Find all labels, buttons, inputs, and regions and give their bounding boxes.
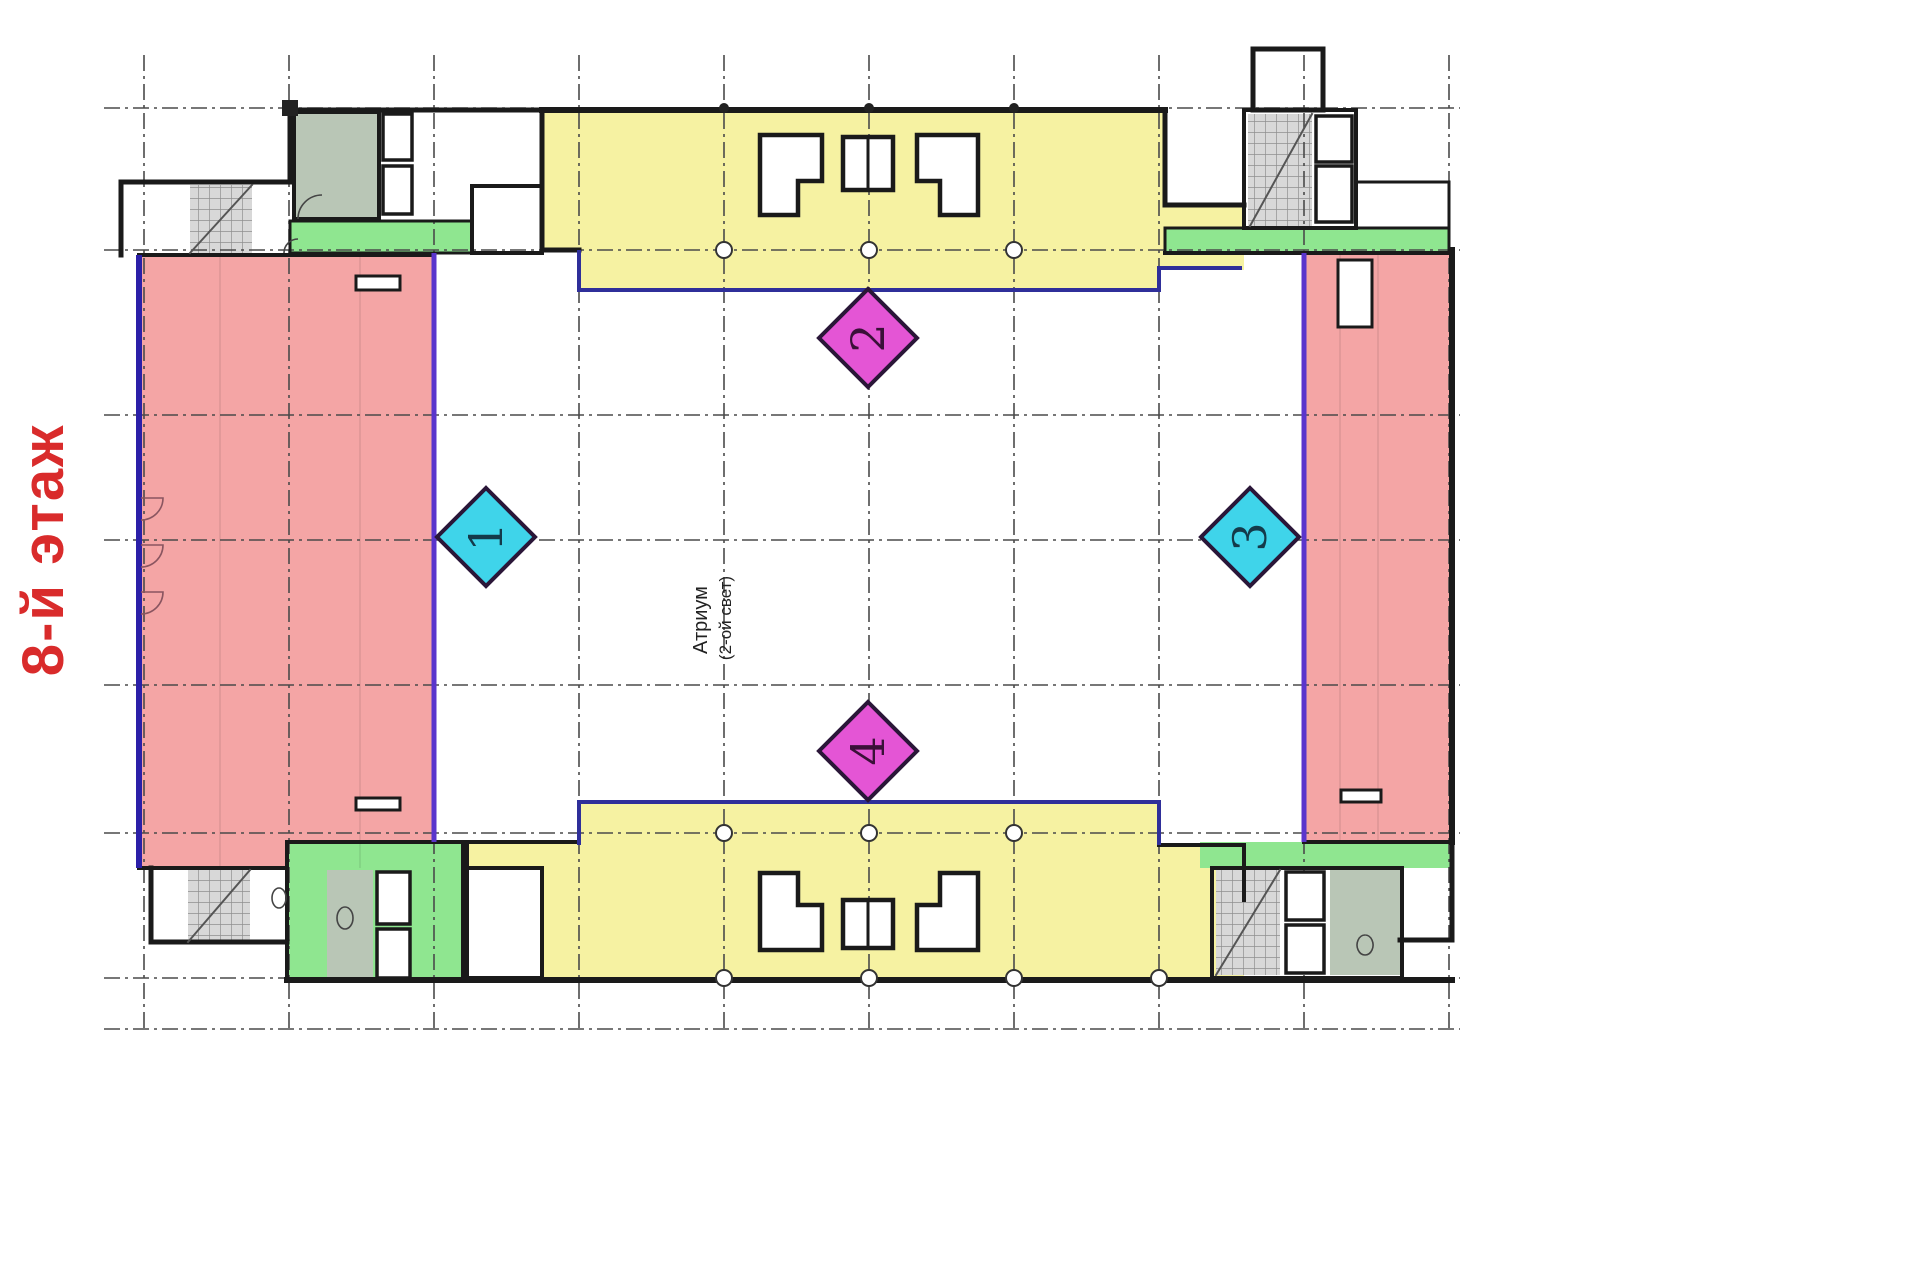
bottom-commercial-zone — [467, 800, 1244, 978]
floor-plan-page: 1 2 3 4 8-й этаж Атриум (2-ой свет) — [0, 0, 1920, 1279]
elevator-shaft — [1286, 872, 1324, 920]
zone-marker-2: 2 — [819, 289, 917, 387]
zone-marker-1: 1 — [437, 488, 535, 586]
zone-marker-3-label: 3 — [1223, 522, 1277, 551]
zone-marker-3: 3 — [1201, 488, 1299, 586]
left-apartment-zone — [139, 255, 434, 868]
corridor-top-left — [290, 221, 472, 253]
corridor-bottom-left — [287, 842, 463, 980]
elevator-shaft — [1286, 925, 1324, 973]
survey-point — [282, 100, 298, 116]
floor-plan-drawing: 1 2 3 4 8-й этаж Атриум (2-ой свет) — [0, 0, 1920, 1279]
lobby-gap-top — [472, 186, 542, 253]
elevator-shaft — [383, 166, 412, 214]
zone-marker-2-label: 2 — [841, 323, 895, 352]
wall-opening — [1341, 790, 1381, 802]
atrium-label-line1: Атриум — [690, 586, 712, 654]
atrium-label: Атриум (2-ой свет) — [690, 576, 735, 660]
wall-opening — [1338, 260, 1372, 327]
zone-marker-1-label: 1 — [459, 522, 513, 551]
service-room-bottom-right — [1330, 870, 1400, 975]
atrium-label-line2: (2-ой свет) — [716, 576, 735, 660]
service-room-bottom-left — [327, 870, 373, 978]
service-room-top-left — [294, 112, 379, 219]
elevator-shaft — [377, 872, 410, 924]
elevator-shaft — [1316, 116, 1352, 162]
zone-marker-4-label: 4 — [841, 736, 895, 765]
room-bottom-right — [1400, 868, 1452, 940]
zone-marker-4: 4 — [819, 702, 917, 800]
floor-title: 8-й этаж — [11, 424, 76, 676]
elevator-shaft — [1316, 166, 1352, 222]
elevator-shaft — [383, 114, 412, 160]
wall-opening — [356, 276, 400, 290]
roof-box-top-right — [1253, 49, 1323, 110]
elevator-shaft — [377, 929, 410, 978]
notch-top-right — [1165, 108, 1244, 205]
zone-markers: 1 2 3 4 — [437, 289, 1299, 800]
wall-opening — [356, 798, 400, 810]
lobby-gap-bottom — [463, 868, 542, 978]
